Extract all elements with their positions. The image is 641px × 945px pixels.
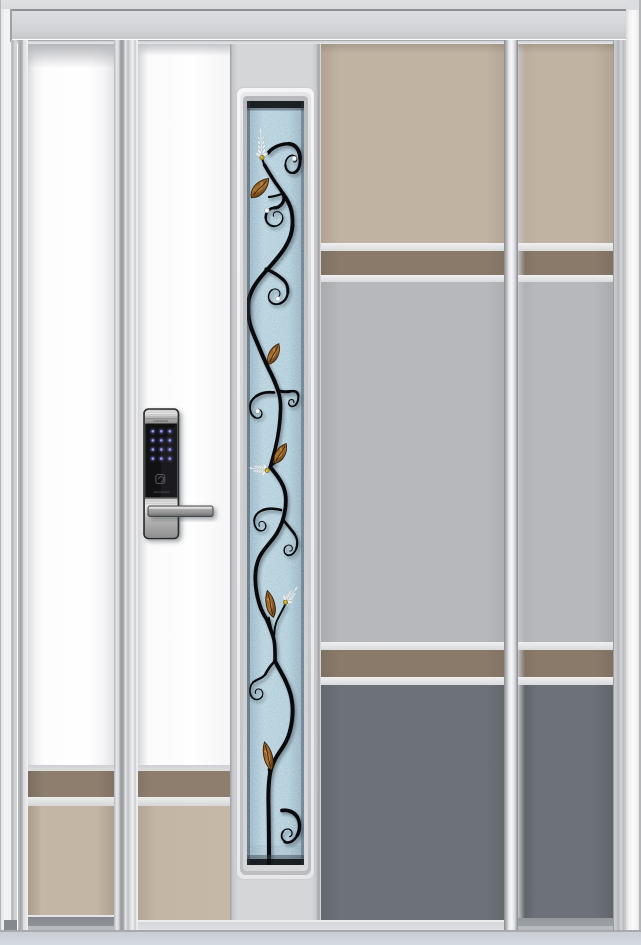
svg-text:GATEMAN: GATEMAN [154, 419, 169, 423]
